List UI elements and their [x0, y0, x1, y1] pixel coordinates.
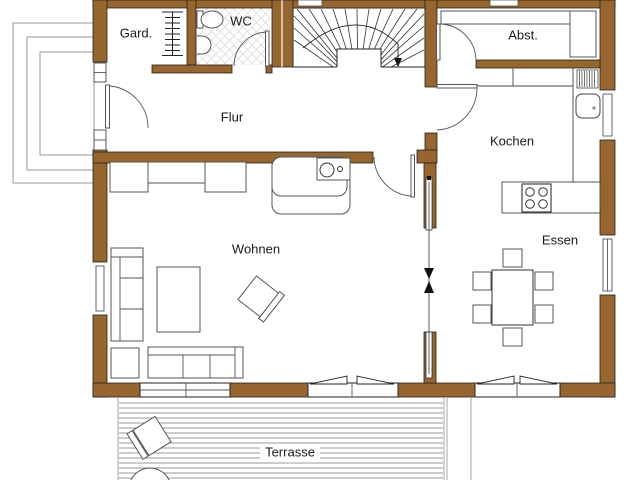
- wall-bottom-3: [398, 383, 475, 397]
- wall-bottom-4: [560, 383, 615, 397]
- wall-right-lower: [600, 295, 615, 397]
- dining-table-icon: [492, 270, 533, 325]
- chair-icon: [473, 272, 491, 290]
- room-label-abst: Abst.: [508, 28, 538, 43]
- wall-abst-bottom: [476, 60, 600, 68]
- armchair-icon: [237, 274, 285, 322]
- chair-icon: [473, 305, 491, 323]
- wall-bottom-1: [93, 383, 140, 397]
- vent-grill-icon: [577, 70, 598, 88]
- wall-right-upper: [600, 0, 615, 90]
- top-wall-vent-left: [298, 0, 322, 6]
- wall-gard-wc-bottom: [152, 65, 232, 73]
- terrace-door-wohnen: [308, 376, 398, 397]
- wall-middle-mid: [425, 133, 437, 150]
- window-front-sidelight-bottom: [94, 130, 106, 150]
- coat-rack-icon: [162, 12, 183, 56]
- coffee-table-icon: [157, 267, 200, 332]
- top-wall-vent-right: [490, 0, 518, 6]
- terrace-table-icon: [129, 468, 171, 480]
- porch-steps-icon: [13, 23, 94, 183]
- chair-icon: [503, 328, 522, 346]
- wall-bottom-2: [230, 383, 308, 397]
- terrace-door-essen: [475, 376, 560, 397]
- fireplace-icon: [272, 157, 350, 214]
- chair-icon: [503, 249, 522, 267]
- stairs-icon: [293, 8, 425, 84]
- room-label-essen: Essen: [542, 233, 578, 248]
- window-kochen-right: [603, 94, 612, 136]
- kitchen-sink-icon: [576, 94, 600, 118]
- wall-top: [93, 0, 615, 8]
- washbasin-icon: [197, 36, 211, 54]
- wall-middle-top: [425, 0, 437, 87]
- toilet-icon: [197, 11, 223, 28]
- terrace-deck: [118, 398, 471, 480]
- stove-icon: [522, 184, 551, 212]
- wall-left-upper: [93, 0, 107, 62]
- wall-right-middle: [600, 140, 615, 235]
- wall-left-middle: [93, 150, 107, 262]
- room-label-gard: Gard.: [120, 26, 153, 41]
- room-label-kochen: Kochen: [490, 134, 534, 149]
- room-label-wc: WC: [230, 14, 252, 29]
- abst-door-icon: [437, 24, 477, 61]
- sideboard-icon: [110, 162, 246, 192]
- window-wohnen-bottom: [140, 383, 230, 397]
- room-label-flur: Flur: [221, 110, 243, 125]
- chair-icon: [535, 272, 553, 290]
- floor-plan: Gard. WC Abst. Flur Kochen Wohnen Essen …: [0, 0, 640, 480]
- kochen-door-icon: [437, 85, 477, 131]
- room-label-wohnen: Wohnen: [232, 242, 280, 257]
- window-wohnen-left: [96, 266, 104, 311]
- wall-middle-junction: [417, 150, 437, 163]
- room-label-terrasse: Terrasse: [260, 445, 320, 460]
- wall-gard-wc-divider: [187, 0, 196, 65]
- window-essen-right: [603, 239, 612, 291]
- chair-icon: [535, 305, 553, 323]
- entrance-door-icon: [106, 85, 149, 128]
- wohnen-door-icon: [374, 155, 415, 197]
- window-front-sidelight-top: [94, 63, 106, 82]
